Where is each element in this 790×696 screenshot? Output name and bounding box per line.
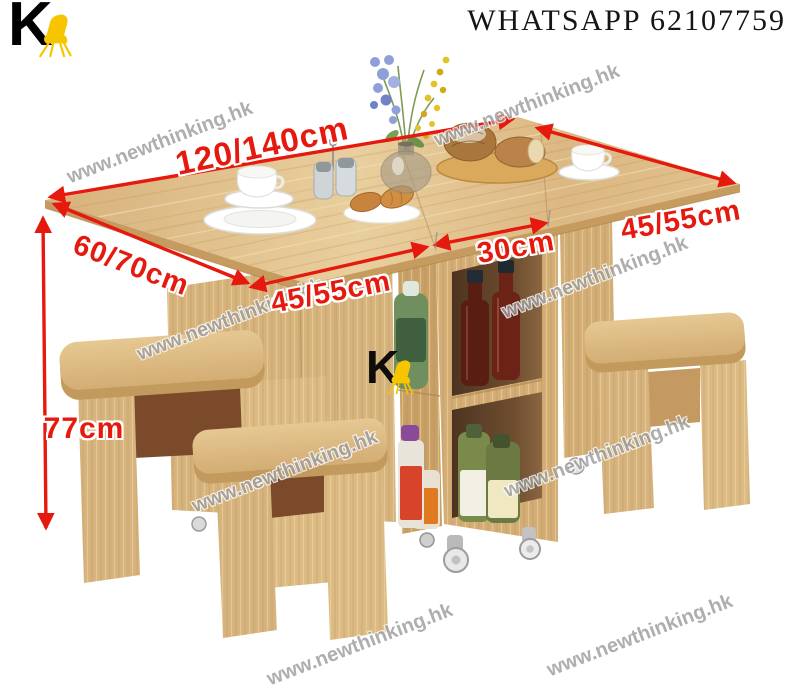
whatsapp-contact-label: WHATSAPP 62107759 [467, 4, 786, 38]
brand-logo: K [8, 0, 88, 64]
brand-chair-icon [33, 14, 75, 58]
brand-logo-center: K [366, 344, 426, 402]
dimension-label-height: 77cm [44, 412, 125, 446]
stool-right [583, 311, 750, 514]
blue-flowers [370, 55, 401, 124]
brand-chair-icon [383, 360, 416, 395]
product-image: www.newthinking.hk www.newthinking.hk ww… [0, 0, 790, 696]
